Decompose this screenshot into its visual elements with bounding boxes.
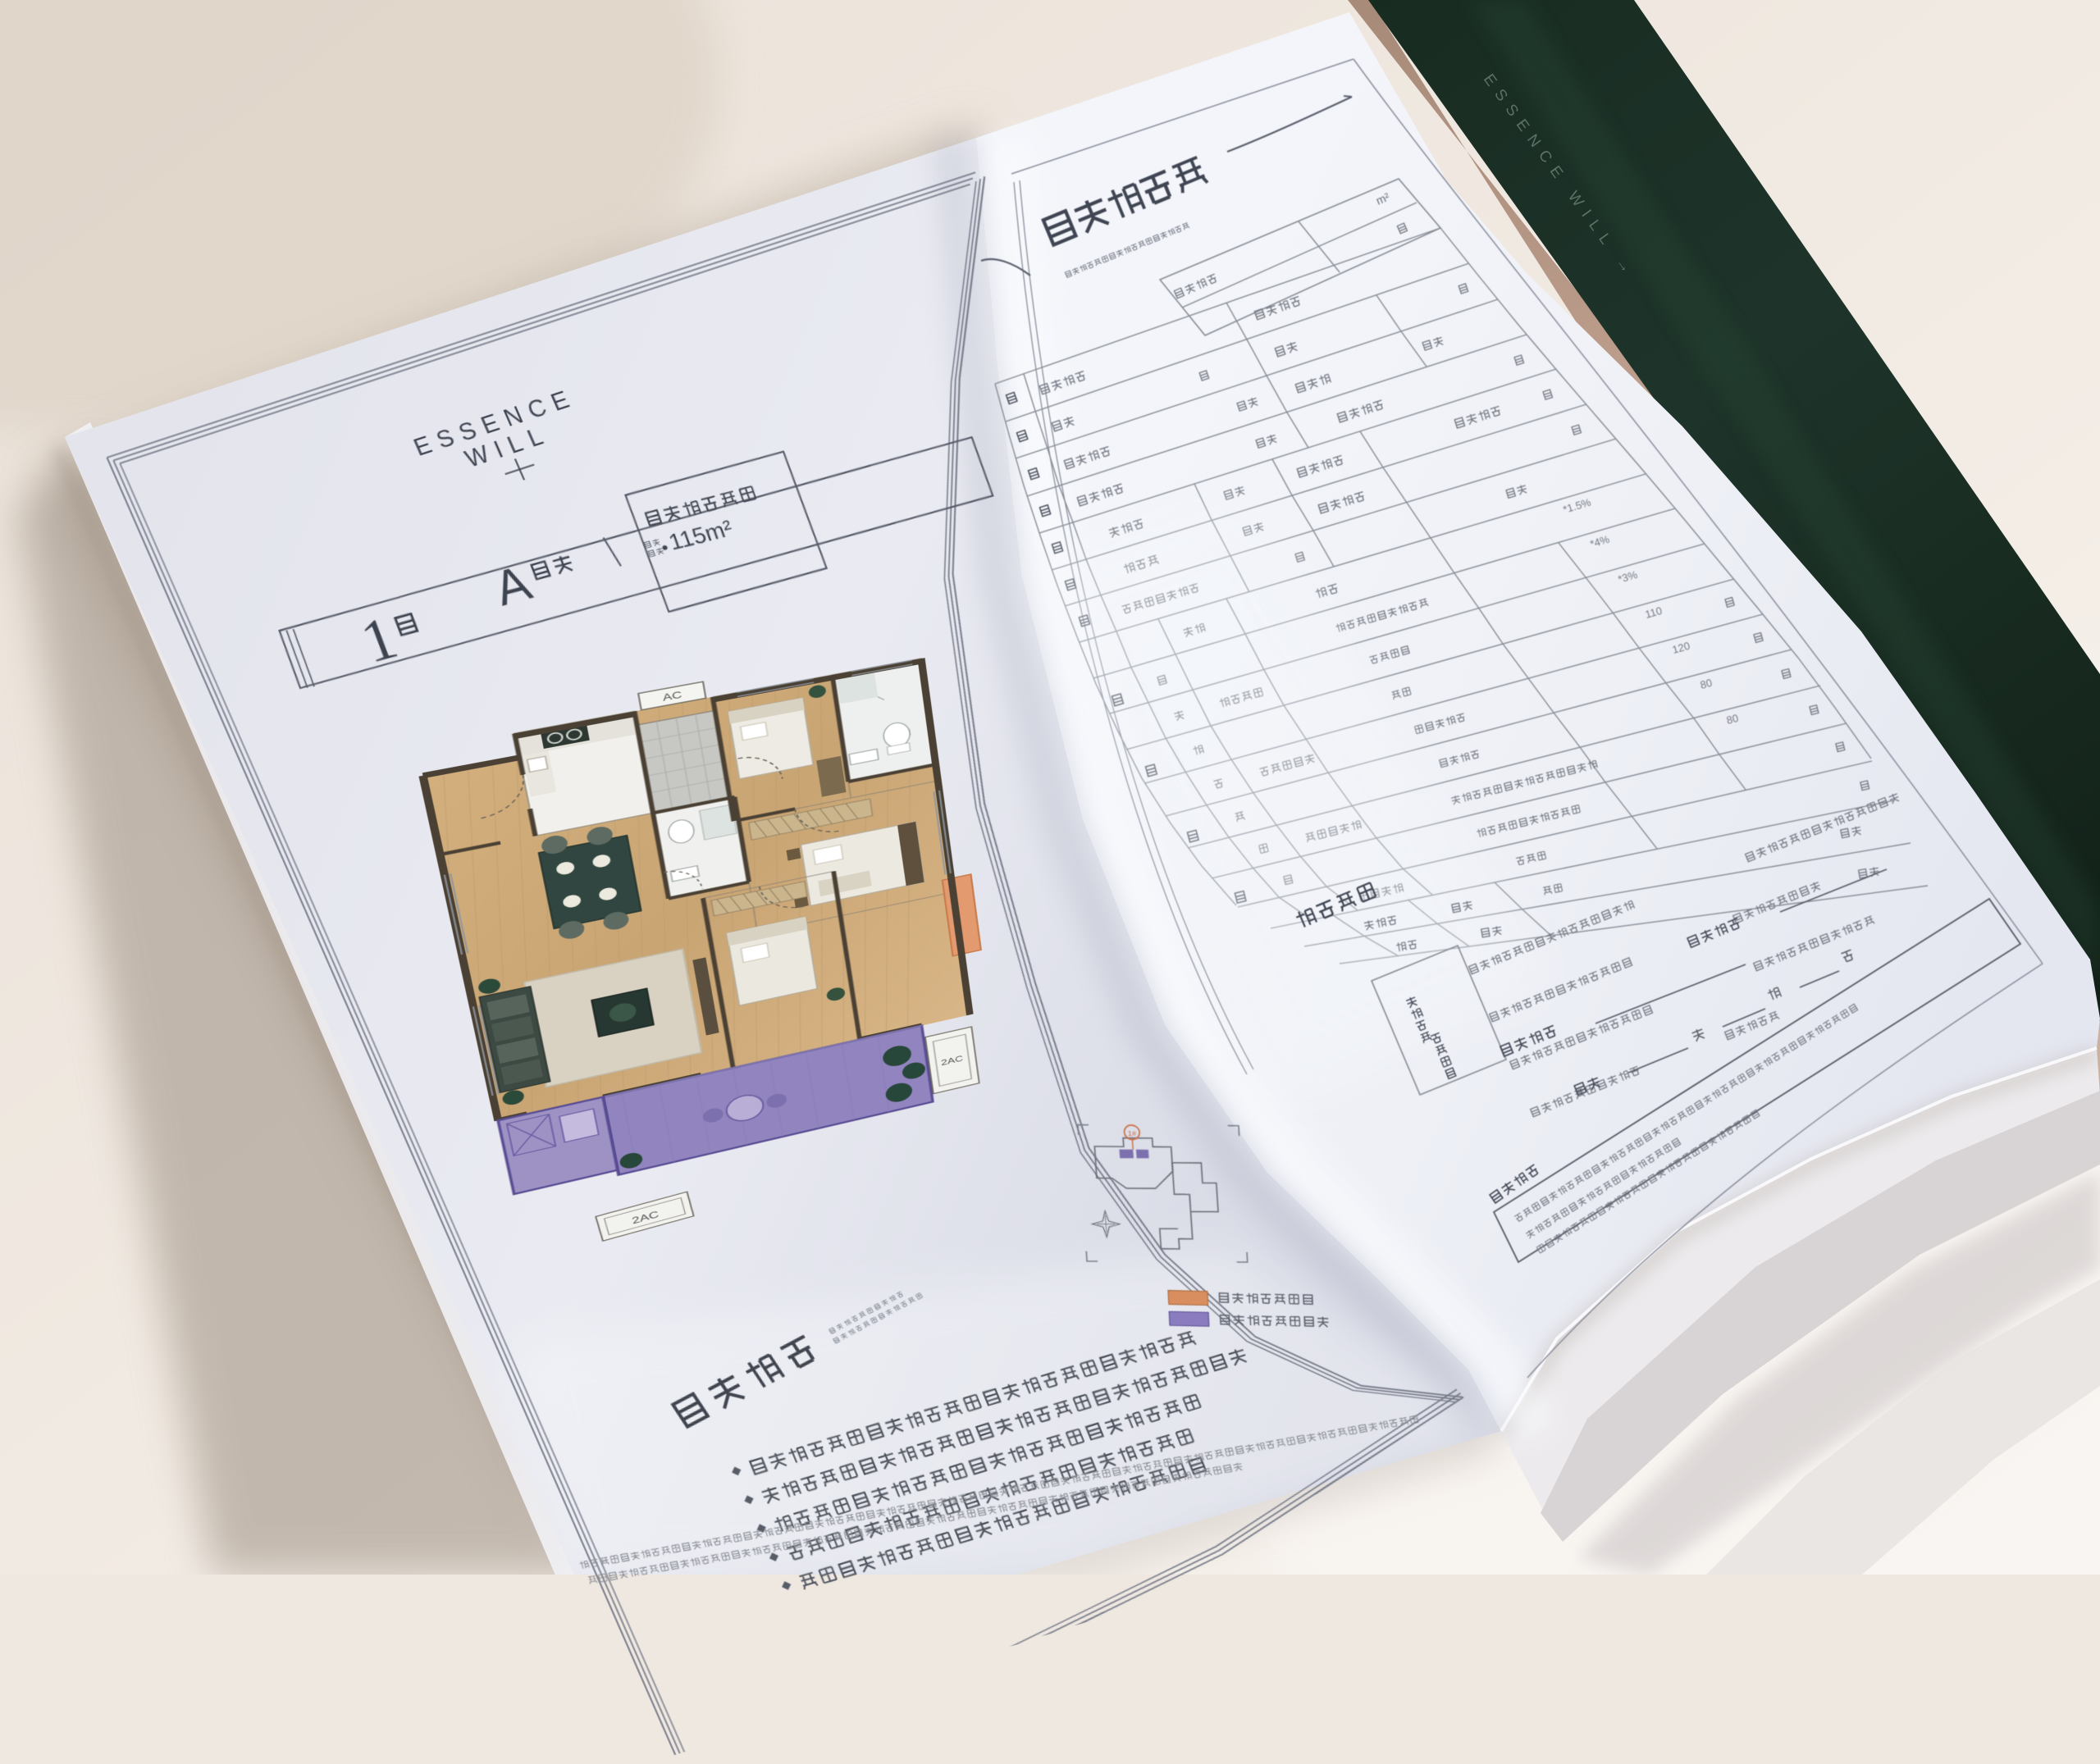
svg-text:80: 80 — [1699, 677, 1714, 691]
svg-text:115m²: 115m² — [665, 516, 736, 555]
svg-text:1: 1 — [353, 604, 406, 676]
svg-text:110: 110 — [1644, 604, 1664, 621]
svg-text:80: 80 — [1725, 712, 1740, 727]
svg-text:*4%: *4% — [1589, 533, 1612, 550]
svg-text:*3%: *3% — [1617, 568, 1639, 586]
svg-text:m²: m² — [1374, 190, 1392, 207]
svg-text:1#: 1# — [1127, 1129, 1137, 1137]
svg-text:*1.5%: *1.5% — [1562, 495, 1593, 515]
svg-text:120: 120 — [1671, 640, 1691, 656]
